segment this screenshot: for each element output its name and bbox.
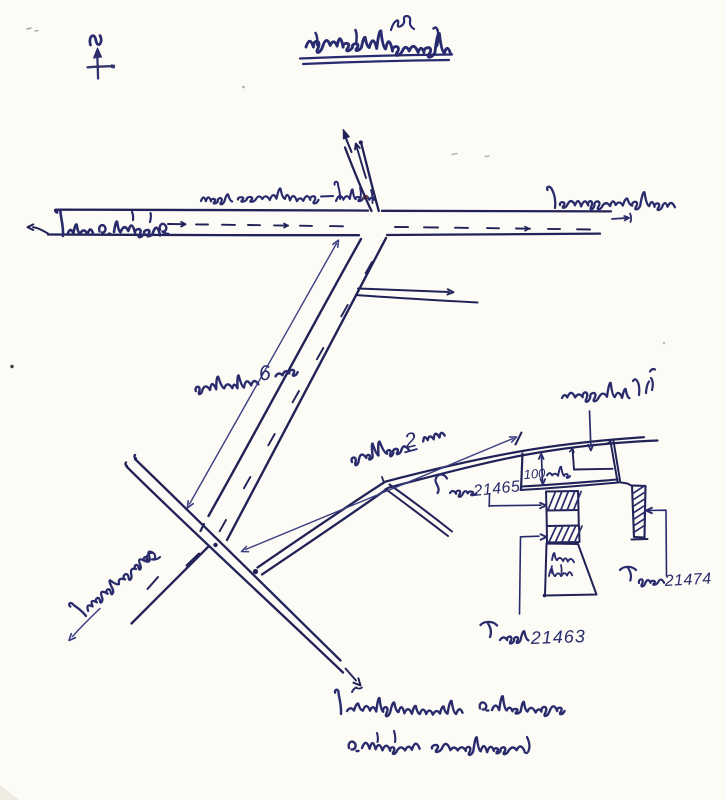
svg-text:21474: 21474 xyxy=(663,571,712,590)
svg-text:21463: 21463 xyxy=(529,626,586,648)
svg-text:100: 100 xyxy=(523,465,546,482)
